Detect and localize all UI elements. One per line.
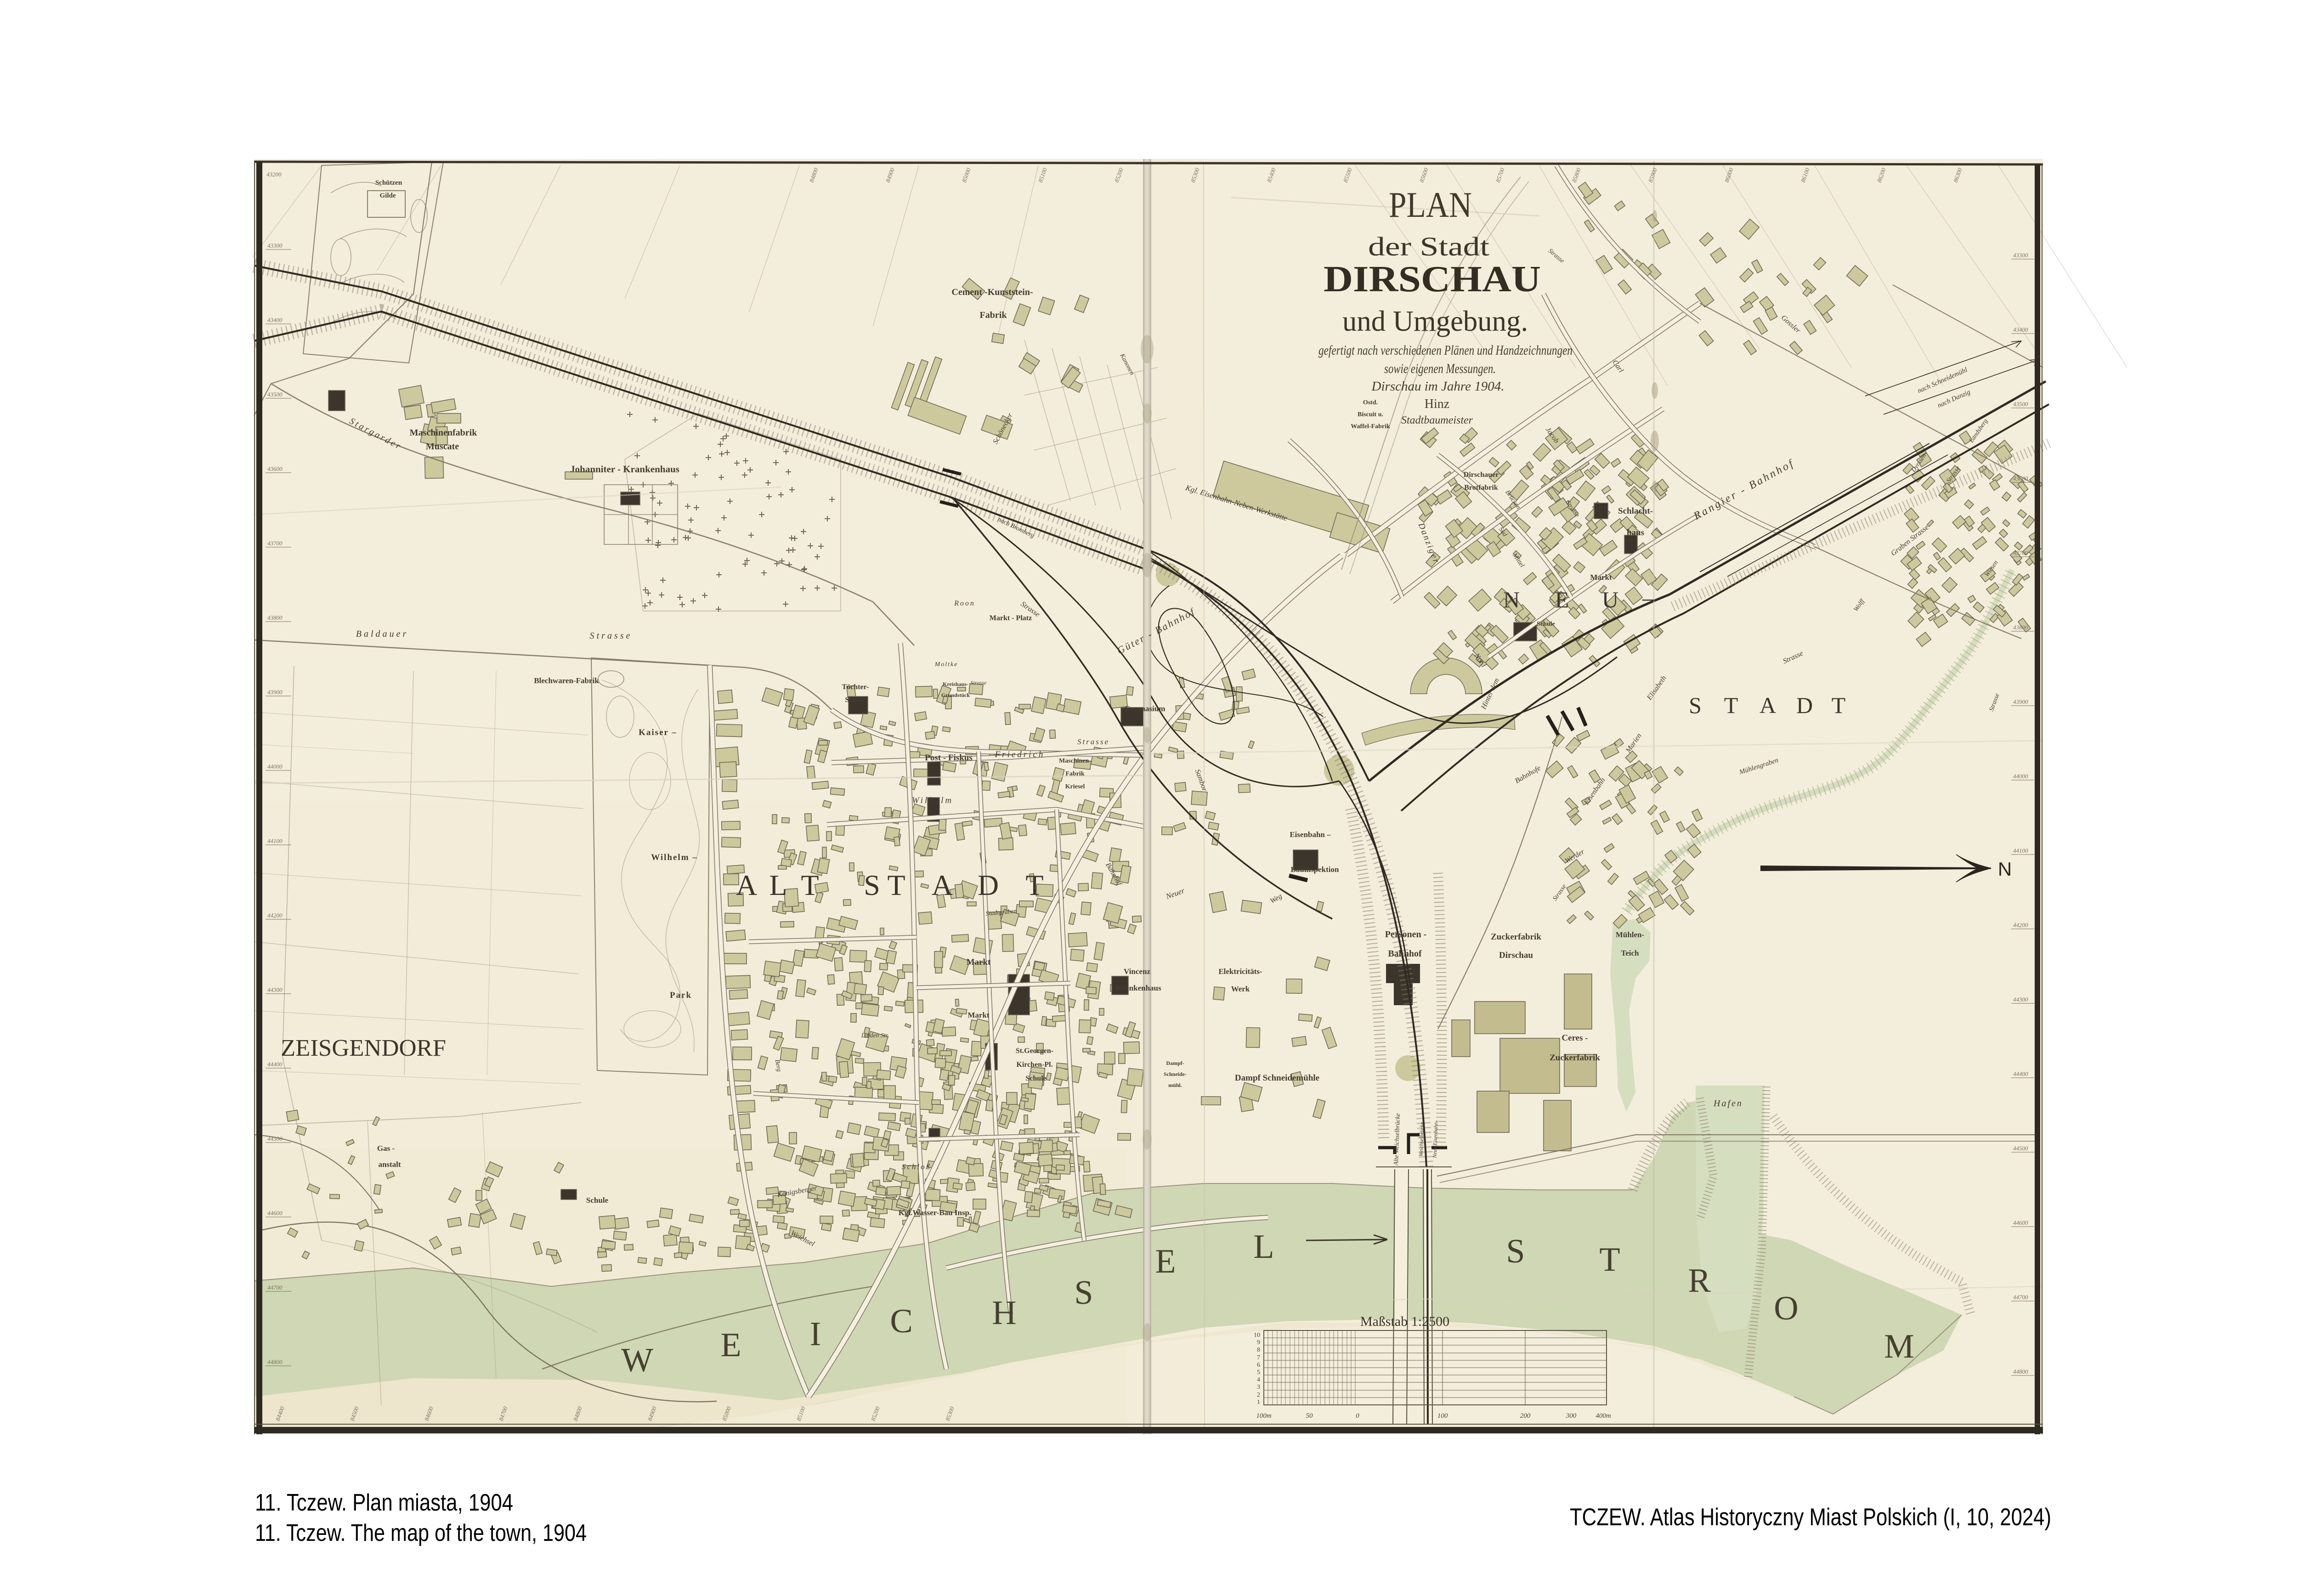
svg-text:9: 9 xyxy=(1257,1339,1260,1346)
svg-text:TCZEW. Atlas Historyczny Miast: TCZEW. Atlas Historyczny Miast Polskich … xyxy=(1570,1504,2051,1531)
svg-text:Markt - Platz: Markt - Platz xyxy=(990,614,1032,622)
svg-text:Markt: Markt xyxy=(1590,573,1612,582)
svg-text:S: S xyxy=(864,869,880,901)
svg-text:T: T xyxy=(887,869,905,901)
svg-text:44300: 44300 xyxy=(267,986,283,993)
svg-text:43700: 43700 xyxy=(267,540,283,547)
svg-text:DIRSCHAU: DIRSCHAU xyxy=(1324,259,1541,300)
svg-text:T: T xyxy=(1724,692,1738,718)
svg-text:T: T xyxy=(1832,692,1846,718)
svg-text:Kirchen-Pl.: Kirchen-Pl. xyxy=(1016,1061,1052,1069)
svg-text:N: N xyxy=(1998,858,2012,880)
svg-text:Eisenbahn –: Eisenbahn – xyxy=(1290,830,1331,839)
svg-text:Schloß: Schloß xyxy=(902,1162,931,1171)
svg-text:W: W xyxy=(621,1341,653,1379)
svg-text:Roon: Roon xyxy=(954,600,975,607)
svg-text:Maßstab 1:2500: Maßstab 1:2500 xyxy=(1360,1314,1449,1329)
svg-text:Waffel-Fabrik: Waffel-Fabrik xyxy=(1351,423,1390,430)
svg-text:200: 200 xyxy=(1520,1412,1531,1420)
svg-text:haus: haus xyxy=(1627,528,1644,538)
svg-text:–: – xyxy=(1642,585,1654,611)
svg-text:Werk: Werk xyxy=(1231,985,1250,993)
svg-text:L: L xyxy=(1253,1228,1274,1266)
svg-text:11. Tczew. The map of the town: 11. Tczew. The map of the town, 1904 xyxy=(255,1520,587,1546)
svg-text:43400: 43400 xyxy=(2013,326,2028,333)
svg-text:S: S xyxy=(1074,1274,1093,1312)
svg-text:11. Tczew. Plan miasta, 1904: 11. Tczew. Plan miasta, 1904 xyxy=(255,1489,513,1516)
svg-text:T: T xyxy=(1599,1241,1620,1279)
svg-text:44200: 44200 xyxy=(267,912,283,919)
svg-text:gefertigt nach verschiedenen P: gefertigt nach verschiedenen Plänen und … xyxy=(1318,343,1573,358)
svg-text:L: L xyxy=(769,869,787,901)
svg-text:1: 1 xyxy=(1257,1399,1260,1406)
svg-text:M: M xyxy=(1884,1328,1914,1365)
svg-text:Kreishaus-: Kreishaus- xyxy=(943,681,968,687)
svg-text:Moltke: Moltke xyxy=(934,661,958,668)
svg-text:Strasse: Strasse xyxy=(590,631,633,641)
svg-text:43400: 43400 xyxy=(267,317,283,323)
svg-text:Kgl.Wasser-Bau Insp.: Kgl.Wasser-Bau Insp. xyxy=(899,1208,972,1217)
svg-text:Mühlen-: Mühlen- xyxy=(1616,930,1645,939)
svg-text:44500: 44500 xyxy=(267,1135,283,1142)
svg-text:44400: 44400 xyxy=(2013,1070,2028,1077)
svg-text:A: A xyxy=(736,869,757,901)
svg-text:St.Georgen-: St.Georgen- xyxy=(1016,1047,1053,1055)
svg-text:Neue Eisenbahn-: Neue Eisenbahn- xyxy=(1431,1120,1439,1159)
svg-text:4: 4 xyxy=(1257,1376,1260,1383)
svg-text:Dampf-: Dampf- xyxy=(1166,1060,1184,1066)
svg-text:10: 10 xyxy=(1254,1332,1260,1339)
svg-text:E: E xyxy=(1155,1243,1176,1280)
svg-text:Baldauer: Baldauer xyxy=(356,629,408,639)
svg-text:Park: Park xyxy=(670,990,692,1000)
svg-text:Schneide-: Schneide- xyxy=(1164,1071,1187,1077)
svg-text:43300: 43300 xyxy=(267,242,283,249)
svg-text:44800: 44800 xyxy=(267,1358,283,1365)
svg-text:44300: 44300 xyxy=(2013,996,2028,1003)
svg-text:43200: 43200 xyxy=(266,171,282,178)
svg-text:Muscate: Muscate xyxy=(426,441,459,452)
svg-text:Schule: Schule xyxy=(845,696,866,704)
svg-text:Blechwaren-Fabrik: Blechwaren-Fabrik xyxy=(534,676,599,685)
svg-text:Brotfabrik: Brotfabrik xyxy=(1464,484,1498,492)
svg-text:44000: 44000 xyxy=(2013,773,2028,780)
svg-text:Kaiser –: Kaiser – xyxy=(639,728,677,737)
svg-text:Dirschauer: Dirschauer xyxy=(1464,471,1499,479)
svg-text:43300: 43300 xyxy=(2013,252,2028,259)
svg-text:D: D xyxy=(978,869,999,901)
svg-text:Maschinen-: Maschinen- xyxy=(1059,758,1091,764)
svg-text:D: D xyxy=(1796,692,1813,718)
svg-text:43900: 43900 xyxy=(2013,698,2028,705)
svg-text:Strasse: Strasse xyxy=(1077,737,1109,746)
svg-text:Linden Str.: Linden Str. xyxy=(861,1032,889,1039)
svg-text:44200: 44200 xyxy=(2013,922,2028,928)
svg-text:Ceres -: Ceres - xyxy=(1562,1033,1588,1043)
svg-text:und Umgebung.: und Umgebung. xyxy=(1342,305,1528,337)
svg-text:44600: 44600 xyxy=(2013,1219,2028,1226)
svg-text:S: S xyxy=(1689,692,1702,718)
svg-text:44100: 44100 xyxy=(2013,847,2028,854)
svg-text:43600: 43600 xyxy=(267,465,283,472)
svg-text:anstalt: anstalt xyxy=(378,1160,401,1169)
svg-text:I: I xyxy=(810,1315,821,1353)
svg-text:44100: 44100 xyxy=(267,838,283,844)
svg-text:Grundstück: Grundstück xyxy=(941,692,970,698)
svg-text:43800: 43800 xyxy=(2013,624,2028,631)
svg-text:44000: 44000 xyxy=(267,763,283,770)
svg-text:Hinz: Hinz xyxy=(1425,397,1449,411)
svg-text:Vincenz: Vincenz xyxy=(1124,967,1150,976)
svg-text:S: S xyxy=(1506,1233,1525,1270)
svg-text:U: U xyxy=(1602,587,1618,612)
svg-text:sowie eigenen Messungen.: sowie eigenen Messungen. xyxy=(1384,361,1496,376)
svg-text:Fabrik: Fabrik xyxy=(1065,770,1084,777)
svg-text:44700: 44700 xyxy=(267,1284,283,1291)
svg-text:Maschinenfabrik: Maschinenfabrik xyxy=(410,428,478,438)
svg-text:Schlacht-: Schlacht- xyxy=(1618,506,1653,516)
svg-text:Gymnasium: Gymnasium xyxy=(1125,704,1165,713)
svg-text:43800: 43800 xyxy=(267,614,283,621)
svg-text:100: 100 xyxy=(1437,1412,1448,1420)
svg-text:mühl.: mühl. xyxy=(1168,1082,1182,1088)
svg-text:H: H xyxy=(992,1294,1016,1332)
svg-text:N: N xyxy=(1503,587,1520,612)
svg-text:Schule: Schule xyxy=(586,1196,609,1205)
svg-text:300: 300 xyxy=(1566,1412,1577,1420)
svg-text:Wilhelm –: Wilhelm – xyxy=(651,853,698,862)
svg-text:44400: 44400 xyxy=(267,1061,283,1068)
svg-text:43500: 43500 xyxy=(267,391,283,398)
svg-text:400m: 400m xyxy=(1595,1412,1611,1420)
svg-text:Bauinspektion: Bauinspektion xyxy=(1291,865,1339,874)
svg-text:Friedrich: Friedrich xyxy=(995,750,1045,759)
svg-text:43600: 43600 xyxy=(2013,475,2028,482)
svg-text:der Stadt: der Stadt xyxy=(1368,232,1489,261)
svg-text:Personen -: Personen - xyxy=(1385,929,1427,939)
svg-text:Schule: Schule xyxy=(1025,1075,1046,1082)
svg-text:43500: 43500 xyxy=(2013,401,2028,407)
svg-text:0: 0 xyxy=(1356,1412,1359,1420)
svg-text:Strasse: Strasse xyxy=(971,679,987,686)
svg-text:C: C xyxy=(890,1302,912,1340)
svg-text:100m: 100m xyxy=(1256,1412,1272,1420)
svg-text:44600: 44600 xyxy=(267,1210,283,1217)
svg-text:Hafen: Hafen xyxy=(1713,1098,1743,1109)
svg-text:50: 50 xyxy=(1306,1412,1313,1420)
svg-text:3: 3 xyxy=(1257,1384,1260,1391)
svg-text:Kriesel: Kriesel xyxy=(1065,783,1085,790)
svg-text:8: 8 xyxy=(1257,1347,1260,1353)
svg-text:R: R xyxy=(1688,1262,1711,1300)
svg-text:43900: 43900 xyxy=(267,689,283,696)
svg-text:Biscuit u.: Biscuit u. xyxy=(1358,411,1383,418)
svg-text:Schützen: Schützen xyxy=(375,179,402,187)
svg-text:44800: 44800 xyxy=(2013,1368,2028,1375)
svg-text:Fabrik: Fabrik xyxy=(980,310,1007,320)
svg-text:Teich: Teich xyxy=(1621,949,1639,957)
svg-text:Markt: Markt xyxy=(967,957,991,967)
svg-text:Krankenhaus: Krankenhaus xyxy=(1115,984,1161,992)
svg-text:Post - Fiskus: Post - Fiskus xyxy=(925,753,972,763)
svg-text:ZEISGENDORF: ZEISGENDORF xyxy=(281,1035,446,1061)
svg-text:7: 7 xyxy=(1257,1354,1260,1361)
svg-text:A: A xyxy=(1760,692,1776,718)
svg-text:2: 2 xyxy=(1257,1392,1260,1398)
svg-text:O: O xyxy=(1774,1290,1798,1327)
svg-text:Wilhelm: Wilhelm xyxy=(912,796,953,805)
svg-text:Bahnhof: Bahnhof xyxy=(1388,949,1422,959)
svg-text:44500: 44500 xyxy=(2013,1145,2028,1152)
svg-text:Gilde: Gilde xyxy=(379,192,396,199)
svg-text:A: A xyxy=(932,869,953,901)
svg-text:E: E xyxy=(1555,587,1569,612)
svg-text:Schule: Schule xyxy=(1537,621,1555,628)
svg-text:Töchter-: Töchter- xyxy=(842,683,869,691)
svg-text:Zuckerfabrik: Zuckerfabrik xyxy=(1491,932,1541,942)
svg-text:Gas -: Gas - xyxy=(377,1144,395,1153)
svg-text:Markt: Markt xyxy=(967,1011,990,1019)
svg-text:Cement -Kunststein-: Cement -Kunststein- xyxy=(951,287,1033,297)
svg-text:Elektricitäts-: Elektricitäts- xyxy=(1218,967,1262,976)
svg-text:Dirschau: Dirschau xyxy=(1499,951,1533,960)
svg-text:T: T xyxy=(1025,869,1043,901)
svg-text:PLAN: PLAN xyxy=(1389,185,1472,225)
svg-text:Dampf Schneidemühle: Dampf Schneidemühle xyxy=(1235,1073,1319,1083)
svg-text:Weichselbrücke: Weichselbrücke xyxy=(1418,1122,1426,1157)
svg-text:Dirschau im Jahre 1904.: Dirschau im Jahre 1904. xyxy=(1371,379,1505,394)
svg-text:5: 5 xyxy=(1257,1369,1260,1376)
svg-text:Johanniter - Krankenhaus: Johanniter - Krankenhaus xyxy=(570,464,679,475)
svg-text:6: 6 xyxy=(1257,1362,1260,1369)
svg-text:44700: 44700 xyxy=(2013,1294,2028,1301)
svg-text:43700: 43700 xyxy=(2013,549,2028,556)
svg-text:Stadtbaumeister: Stadtbaumeister xyxy=(1401,414,1473,426)
svg-text:E: E xyxy=(720,1326,741,1364)
svg-text:Ostd.: Ostd. xyxy=(1363,399,1378,406)
svg-text:Zuckerfabrik: Zuckerfabrik xyxy=(1550,1053,1600,1063)
svg-text:T: T xyxy=(801,869,819,901)
